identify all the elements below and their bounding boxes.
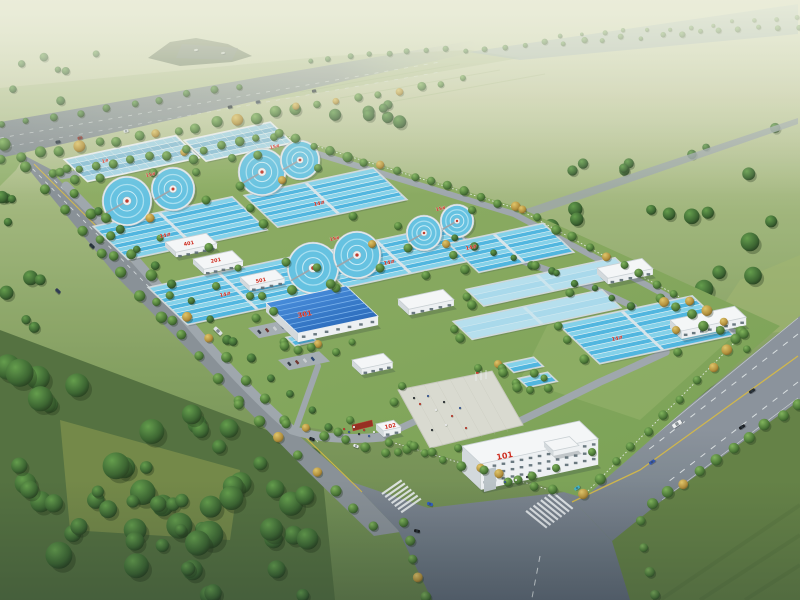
- haze-layer: [0, 0, 800, 600]
- aerial-rendering: 1# 15# 15# 15# 15# 14# 14# 14# 14# 14# 1…: [0, 0, 800, 600]
- bottom-vignette: [0, 480, 800, 600]
- scene-canvas: 1# 15# 15# 15# 15# 14# 14# 14# 14# 14# 1…: [0, 0, 800, 600]
